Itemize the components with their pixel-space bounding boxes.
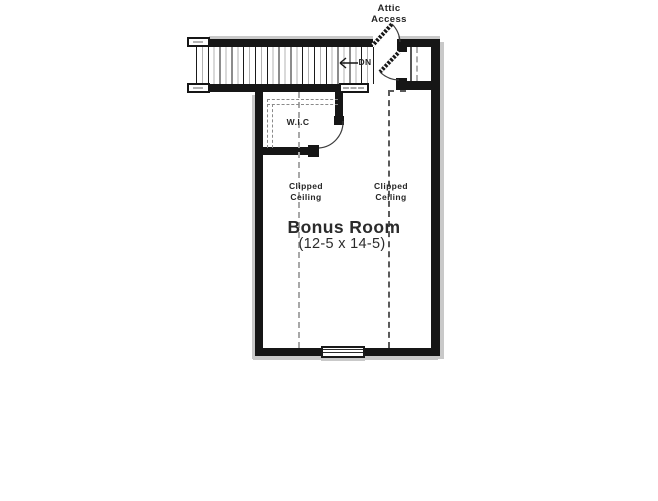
wall-wic-bottom [255,147,310,155]
clipped-ceiling-right-line2: Ceiling [374,192,408,203]
clipped-ceiling-left-line2: Ceiling [289,192,323,203]
wall-stair-bottom [209,84,343,92]
wall-wic-door-jamb [308,145,319,157]
attic-access-label-line2: Access [371,14,407,25]
stairs-down-label: DN [358,57,371,68]
closet-rod-line [416,47,418,81]
attic-access-label-line1: Attic [371,3,407,14]
wall-top-left [209,39,373,47]
wall-closet-door-jamb-top [397,39,407,52]
window-bottom [321,346,365,358]
stairwell-wall-cap-bottom [187,83,210,93]
wic-rod-line [267,104,338,105]
wall-left [255,92,263,356]
wic-rod-line-side [272,104,273,148]
stairwell-wall-cap-top [187,37,210,47]
wic-door-swing-icon [319,121,343,148]
clipped-ceiling-label-right: Clipped Ceiling [374,181,408,202]
wall-closet-bottom [396,81,440,90]
closet-shelf-line [410,47,412,81]
wall-wic-right [335,92,343,118]
wic-label: W.I.C [287,117,310,128]
attic-access-label: Attic Access [371,3,407,25]
stair-treads [196,47,374,84]
stair-railing [339,83,369,93]
clipped-ceiling-line-right-corner [388,90,406,92]
wic-door-leaf [334,116,344,125]
room-dimensions-label: (12-5 x 14-5) [299,236,386,252]
closet-door-icon [380,52,399,80]
floor-plan: Attic Access DN W.I.C Clipped Ceiling Cl… [0,0,658,501]
clipped-ceiling-label-left: Clipped Ceiling [289,181,323,202]
clipped-ceiling-right-line1: Clipped [374,181,408,192]
wic-shelf-line-side [267,99,268,148]
clipped-ceiling-left-line1: Clipped [289,181,323,192]
wic-shelf-line [267,99,338,100]
attic-access-door-icon [373,24,400,45]
room-name-label: Bonus Room [288,217,401,238]
